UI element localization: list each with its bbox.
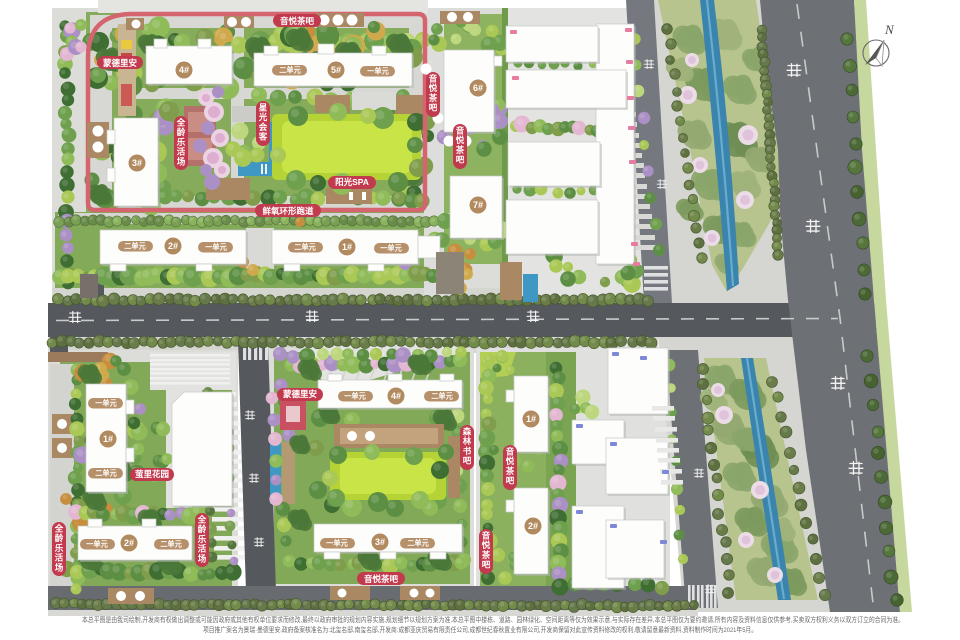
svg-text:音悦茶吧: 音悦茶吧 xyxy=(280,16,315,26)
svg-text:场: 场 xyxy=(198,553,207,563)
svg-text:一单元: 一单元 xyxy=(326,539,348,548)
svg-text:悦: 悦 xyxy=(429,83,438,93)
svg-text:7#: 7# xyxy=(473,200,483,210)
svg-text:茶: 茶 xyxy=(505,466,515,476)
svg-text:茶: 茶 xyxy=(428,93,438,103)
svg-text:活: 活 xyxy=(177,147,186,157)
svg-text:1#: 1# xyxy=(342,242,352,252)
svg-text:二单元: 二单元 xyxy=(431,392,453,401)
svg-text:光: 光 xyxy=(258,112,268,122)
svg-text:音悦茶吧: 音悦茶吧 xyxy=(364,574,399,584)
svg-text:一单元: 一单元 xyxy=(367,67,389,76)
svg-text:龄: 龄 xyxy=(55,533,64,543)
svg-text:活: 活 xyxy=(198,544,207,554)
svg-text:悦: 悦 xyxy=(456,135,465,145)
svg-text:音: 音 xyxy=(456,125,465,135)
svg-text:鲜氧环形跑道: 鲜氧环形跑道 xyxy=(262,206,314,216)
svg-text:二单元: 二单元 xyxy=(407,539,429,548)
svg-text:2#: 2# xyxy=(168,241,178,251)
svg-text:1#: 1# xyxy=(526,414,536,424)
svg-text:2#: 2# xyxy=(528,521,538,531)
svg-text:项目推广案名为景瑞·曼德里安,政府备案核准名为:北玺名邸,南: 项目推广案名为景瑞·曼德里安,政府备案核准名为:北玺名邸,南玺名邸,开发商:成都… xyxy=(203,625,757,634)
svg-text:一单元: 一单元 xyxy=(86,540,108,549)
svg-text:吧: 吧 xyxy=(463,456,472,466)
svg-text:悦: 悦 xyxy=(506,456,515,466)
svg-text:一单元: 一单元 xyxy=(95,399,117,408)
svg-text:二单元: 二单元 xyxy=(279,66,301,75)
svg-text:全: 全 xyxy=(54,524,64,534)
svg-text:森: 森 xyxy=(463,426,472,436)
svg-text:蒙德里安: 蒙德里安 xyxy=(283,389,318,399)
svg-text:N: N xyxy=(884,22,895,37)
svg-text:林: 林 xyxy=(463,436,472,446)
svg-text:龄: 龄 xyxy=(198,524,207,534)
svg-text:音: 音 xyxy=(506,446,515,456)
svg-text:吧: 吧 xyxy=(482,560,491,570)
svg-text:场: 场 xyxy=(55,562,64,572)
svg-text:二单元: 二单元 xyxy=(160,540,182,549)
svg-text:活: 活 xyxy=(55,553,64,563)
svg-text:6#: 6# xyxy=(473,83,483,93)
svg-text:龄: 龄 xyxy=(177,127,186,137)
svg-text:一单元: 一单元 xyxy=(380,244,402,253)
svg-text:一单元: 一单元 xyxy=(344,392,366,401)
svg-text:本总平图是由我司绘制,开发商有权做出调整或可能因政府或其他有: 本总平图是由我司绘制,开发商有权做出调整或可能因政府或其他有权单位要求而修改,最… xyxy=(82,615,904,624)
svg-text:乐: 乐 xyxy=(177,137,186,147)
svg-text:萤里花园: 萤里花园 xyxy=(135,469,169,479)
svg-text:4#: 4# xyxy=(179,65,189,75)
svg-text:4#: 4# xyxy=(391,391,401,401)
svg-text:乐: 乐 xyxy=(55,543,64,553)
svg-text:1#: 1# xyxy=(103,434,113,444)
svg-text:二单元: 二单元 xyxy=(124,242,146,251)
svg-text:客: 客 xyxy=(258,132,268,142)
svg-text:二单元: 二单元 xyxy=(95,469,117,478)
svg-text:音: 音 xyxy=(482,530,491,540)
svg-text:3#: 3# xyxy=(132,158,142,168)
svg-text:2#: 2# xyxy=(124,538,134,548)
svg-text:星: 星 xyxy=(259,102,268,112)
svg-text:一单元: 一单元 xyxy=(205,243,227,252)
svg-text:阳光SPA: 阳光SPA xyxy=(335,177,369,187)
svg-text:3#: 3# xyxy=(375,537,385,547)
svg-text:茶: 茶 xyxy=(455,145,465,155)
svg-text:乐: 乐 xyxy=(198,534,207,544)
svg-text:书: 书 xyxy=(463,446,472,456)
svg-text:场: 场 xyxy=(177,156,186,166)
svg-text:吧: 吧 xyxy=(429,103,438,113)
svg-text:茶: 茶 xyxy=(481,550,491,560)
svg-text:5#: 5# xyxy=(331,65,341,75)
svg-text:会: 会 xyxy=(258,122,268,132)
svg-text:吧: 吧 xyxy=(506,476,515,486)
svg-text:二单元: 二单元 xyxy=(294,243,316,252)
svg-text:全: 全 xyxy=(176,118,186,128)
svg-text:吧: 吧 xyxy=(456,155,465,165)
svg-text:悦: 悦 xyxy=(482,540,491,550)
svg-text:全: 全 xyxy=(197,515,207,525)
svg-text:音: 音 xyxy=(429,73,438,83)
svg-text:蒙德里安: 蒙德里安 xyxy=(103,58,138,68)
